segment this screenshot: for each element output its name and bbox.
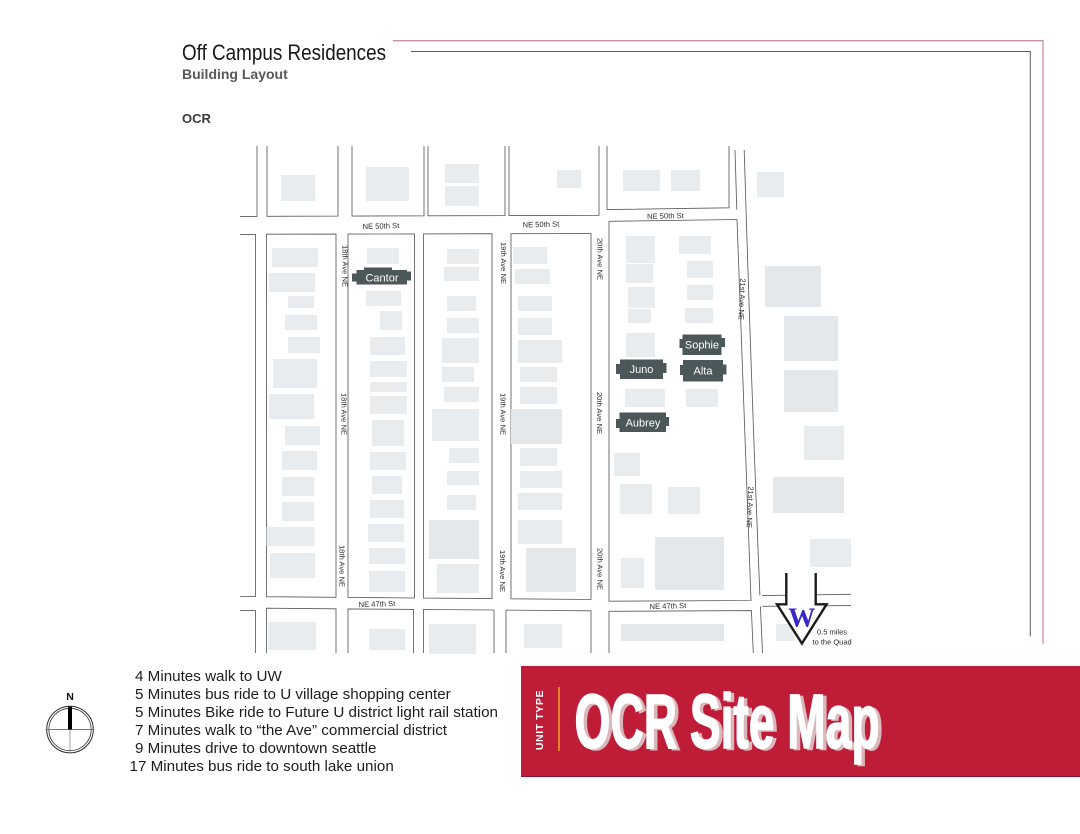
svg-text:20th Ave NE: 20th Ave NE	[596, 548, 605, 590]
svg-text:20th Ave NE: 20th Ave NE	[596, 238, 605, 280]
svg-text:NE 50th St: NE 50th St	[362, 221, 400, 231]
svg-text:21st Ave NE: 21st Ave NE	[745, 486, 756, 528]
svg-text:NE 47th St: NE 47th St	[358, 599, 396, 609]
svg-text:18th Ave NE: 18th Ave NE	[340, 245, 349, 287]
svg-text:19th Ave NE: 19th Ave NE	[498, 550, 507, 592]
svg-text:Cantor: Cantor	[365, 273, 398, 285]
svg-text:N: N	[66, 691, 74, 703]
svg-text:NE 47th St: NE 47th St	[649, 601, 687, 611]
svg-text:Juno: Juno	[630, 364, 654, 376]
svg-text:Alta: Alta	[694, 366, 714, 378]
svg-text:19th Ave NE: 19th Ave NE	[499, 393, 508, 435]
svg-text:to the Quad: to the Quad	[813, 638, 852, 647]
svg-text:21st Ave NE: 21st Ave NE	[737, 278, 748, 320]
svg-text:Sophie: Sophie	[685, 340, 719, 352]
svg-text:W: W	[788, 603, 815, 633]
svg-text:NE 50th St: NE 50th St	[522, 219, 560, 229]
svg-text:18th Ave NE: 18th Ave NE	[339, 393, 348, 435]
svg-text:Aubrey: Aubrey	[626, 418, 661, 430]
svg-text:18th Ave NE: 18th Ave NE	[337, 545, 346, 587]
svg-text:0.5 miles: 0.5 miles	[817, 628, 847, 637]
svg-text:19th Ave NE: 19th Ave NE	[499, 242, 508, 284]
svg-text:20th Ave NE: 20th Ave NE	[595, 392, 604, 434]
svg-text:OCR Site Map: OCR Site Map	[574, 679, 879, 765]
svg-text:NE 50th St: NE 50th St	[647, 211, 685, 221]
